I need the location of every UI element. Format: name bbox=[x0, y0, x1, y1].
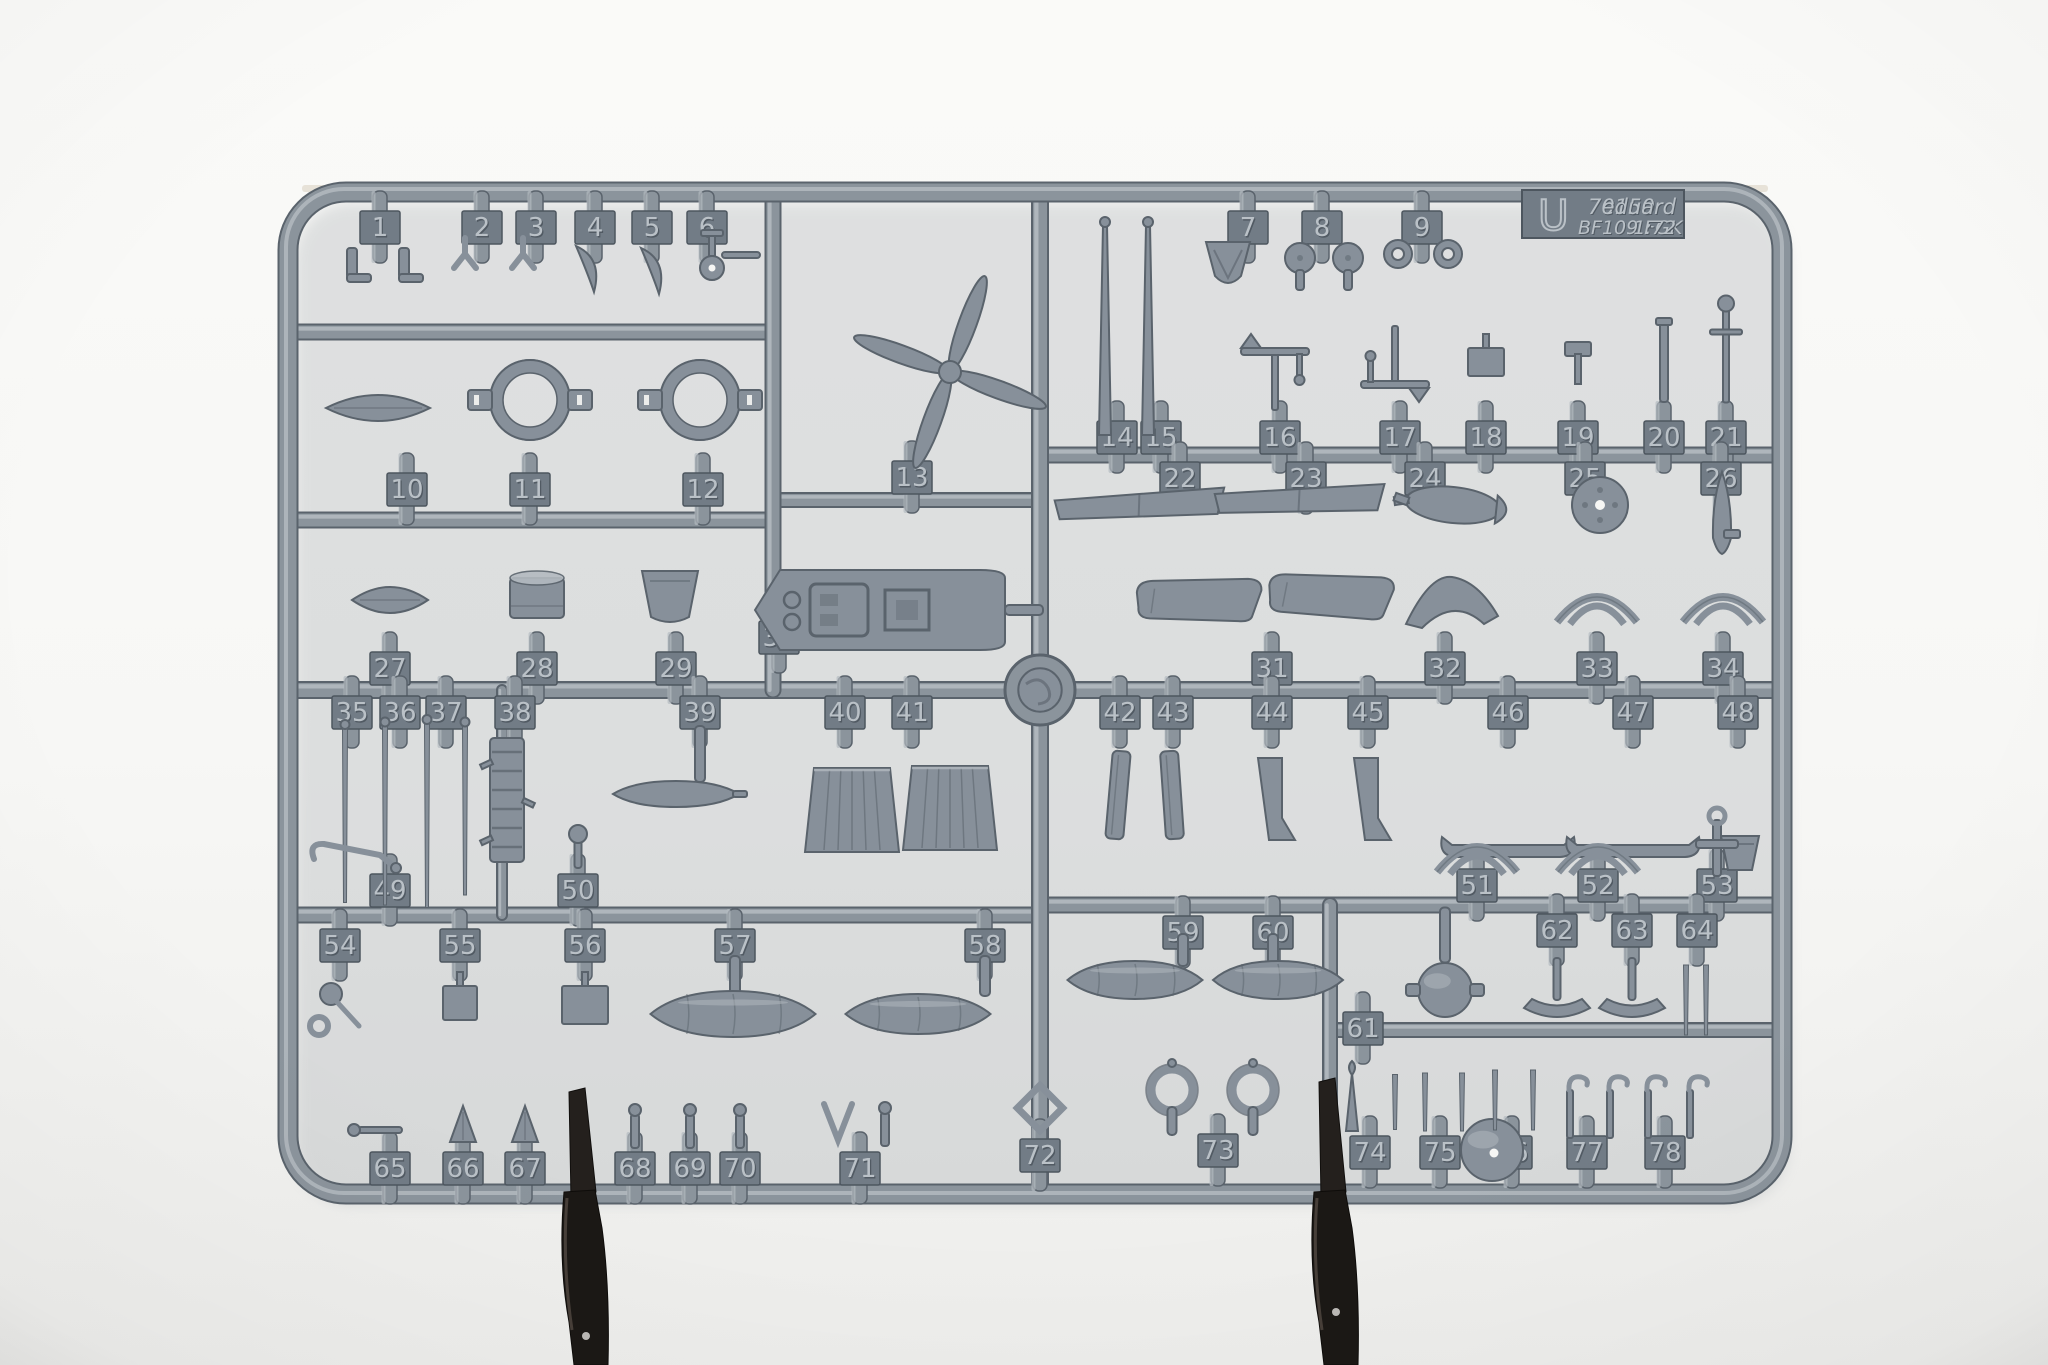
tag-number: 44 bbox=[1255, 698, 1288, 728]
part-61-stem bbox=[1440, 908, 1450, 963]
tag-number: 64 bbox=[1680, 916, 1713, 946]
tag-number: 63 bbox=[1615, 916, 1648, 946]
tag-number: 69 bbox=[673, 1154, 706, 1184]
scale-text: 1:72 bbox=[1633, 217, 1676, 239]
tag-number: 18 bbox=[1469, 423, 1502, 453]
part-76-prong bbox=[1531, 1070, 1536, 1130]
tag-number: 16 bbox=[1263, 423, 1296, 453]
part-71-pin bbox=[879, 1102, 891, 1146]
tag-number: 9 bbox=[1414, 213, 1431, 243]
tag-number: 50 bbox=[561, 876, 594, 906]
part-64-prong bbox=[1704, 965, 1709, 1035]
part-75-prong bbox=[1460, 1073, 1465, 1131]
runner-6 bbox=[1040, 902, 1774, 905]
tag-number: 75 bbox=[1423, 1138, 1456, 1168]
tag-number: 33 bbox=[1580, 654, 1613, 684]
tag-number: 38 bbox=[498, 698, 531, 728]
part-69-pin bbox=[684, 1104, 696, 1148]
tag-number: 8 bbox=[1314, 213, 1331, 243]
tag-number: 62 bbox=[1540, 916, 1573, 946]
tag-number: 13 bbox=[895, 463, 928, 493]
tag-number: 12 bbox=[686, 475, 719, 505]
sprue-svg: 1122334455667788991010111112121313141415… bbox=[0, 0, 2048, 1365]
part-25-disc25 bbox=[1572, 477, 1628, 533]
tag-number: 74 bbox=[1353, 1138, 1386, 1168]
part-70-pin bbox=[734, 1104, 746, 1148]
tag-number: 5 bbox=[644, 213, 661, 243]
clip-screw-dot bbox=[582, 1332, 590, 1340]
render-root: 1122334455667788991010111112121313141415… bbox=[0, 0, 2048, 1365]
tag-number: 29 bbox=[659, 654, 692, 684]
tag-number: 32 bbox=[1428, 654, 1461, 684]
part-57-stem bbox=[730, 956, 740, 996]
clip-screw-dot bbox=[1332, 1308, 1340, 1316]
sprue-photo: 1122334455667788991010111112121313141415… bbox=[0, 0, 2048, 1365]
part-76-prong bbox=[1493, 1070, 1498, 1130]
part-75-prong bbox=[1423, 1073, 1428, 1131]
part-68-pin bbox=[629, 1104, 641, 1148]
tag-number: 40 bbox=[828, 698, 861, 728]
tag-number: 42 bbox=[1103, 698, 1136, 728]
sprue-letter: U bbox=[1538, 191, 1569, 240]
tag-number: 28 bbox=[520, 654, 553, 684]
molding-point bbox=[1005, 655, 1075, 725]
tag-number: 39 bbox=[683, 698, 716, 728]
tag-number: 52 bbox=[1581, 871, 1614, 901]
tag-number: 37 bbox=[429, 698, 462, 728]
tag-number: 71 bbox=[843, 1154, 876, 1184]
part-59-stem bbox=[1178, 934, 1188, 966]
tag-number: 47 bbox=[1616, 698, 1649, 728]
tag-number: 3 bbox=[528, 213, 545, 243]
tag-number: 61 bbox=[1346, 1014, 1379, 1044]
tag-number: 20 bbox=[1647, 423, 1680, 453]
sprue-label-tab: U7015070150eduardeduardBF109 FGKBF109 FG… bbox=[1522, 190, 1685, 240]
tag-number: 55 bbox=[443, 931, 476, 961]
part-29-seat bbox=[642, 571, 698, 622]
tag-number: 65 bbox=[373, 1154, 406, 1184]
tag-number: 41 bbox=[895, 698, 928, 728]
part-28-drum bbox=[510, 571, 564, 618]
part-74-prong bbox=[1393, 1075, 1398, 1130]
tag-number: 2 bbox=[474, 213, 491, 243]
runner-5 bbox=[296, 912, 1040, 915]
tag-number: 45 bbox=[1351, 698, 1384, 728]
part-58-stem bbox=[980, 956, 990, 996]
tag-number: 54 bbox=[323, 931, 356, 961]
tag-number: 17 bbox=[1383, 423, 1416, 453]
tag-number: 70 bbox=[723, 1154, 756, 1184]
tag-number: 66 bbox=[446, 1154, 479, 1184]
tag-number: 72 bbox=[1023, 1141, 1056, 1171]
brand-name: eduard bbox=[1602, 195, 1677, 219]
part-39-stem bbox=[695, 726, 705, 782]
tag-number: 51 bbox=[1460, 871, 1493, 901]
tag-number: 7 bbox=[1240, 213, 1257, 243]
runner-0 bbox=[296, 329, 773, 332]
tag-number: 78 bbox=[1648, 1138, 1681, 1168]
tag-number: 48 bbox=[1721, 698, 1754, 728]
tag-number: 68 bbox=[618, 1154, 651, 1184]
tag-number: 49 bbox=[373, 876, 406, 906]
tag-number: 67 bbox=[508, 1154, 541, 1184]
tag-number: 73 bbox=[1201, 1136, 1234, 1166]
tag-number: 43 bbox=[1156, 698, 1189, 728]
part-64-prong bbox=[1684, 965, 1689, 1035]
part-61-ball bbox=[1461, 1119, 1523, 1181]
tag-number: 56 bbox=[568, 931, 601, 961]
part-30-floor bbox=[755, 570, 1043, 650]
tag-number: 46 bbox=[1491, 698, 1524, 728]
tag-number: 1 bbox=[372, 213, 389, 243]
tag-number: 11 bbox=[513, 475, 546, 505]
tag-number: 10 bbox=[390, 475, 423, 505]
tag-number: 4 bbox=[587, 213, 604, 243]
part-40-flap bbox=[805, 768, 899, 852]
part-41-flap bbox=[903, 766, 997, 850]
tag-number: 77 bbox=[1570, 1138, 1603, 1168]
